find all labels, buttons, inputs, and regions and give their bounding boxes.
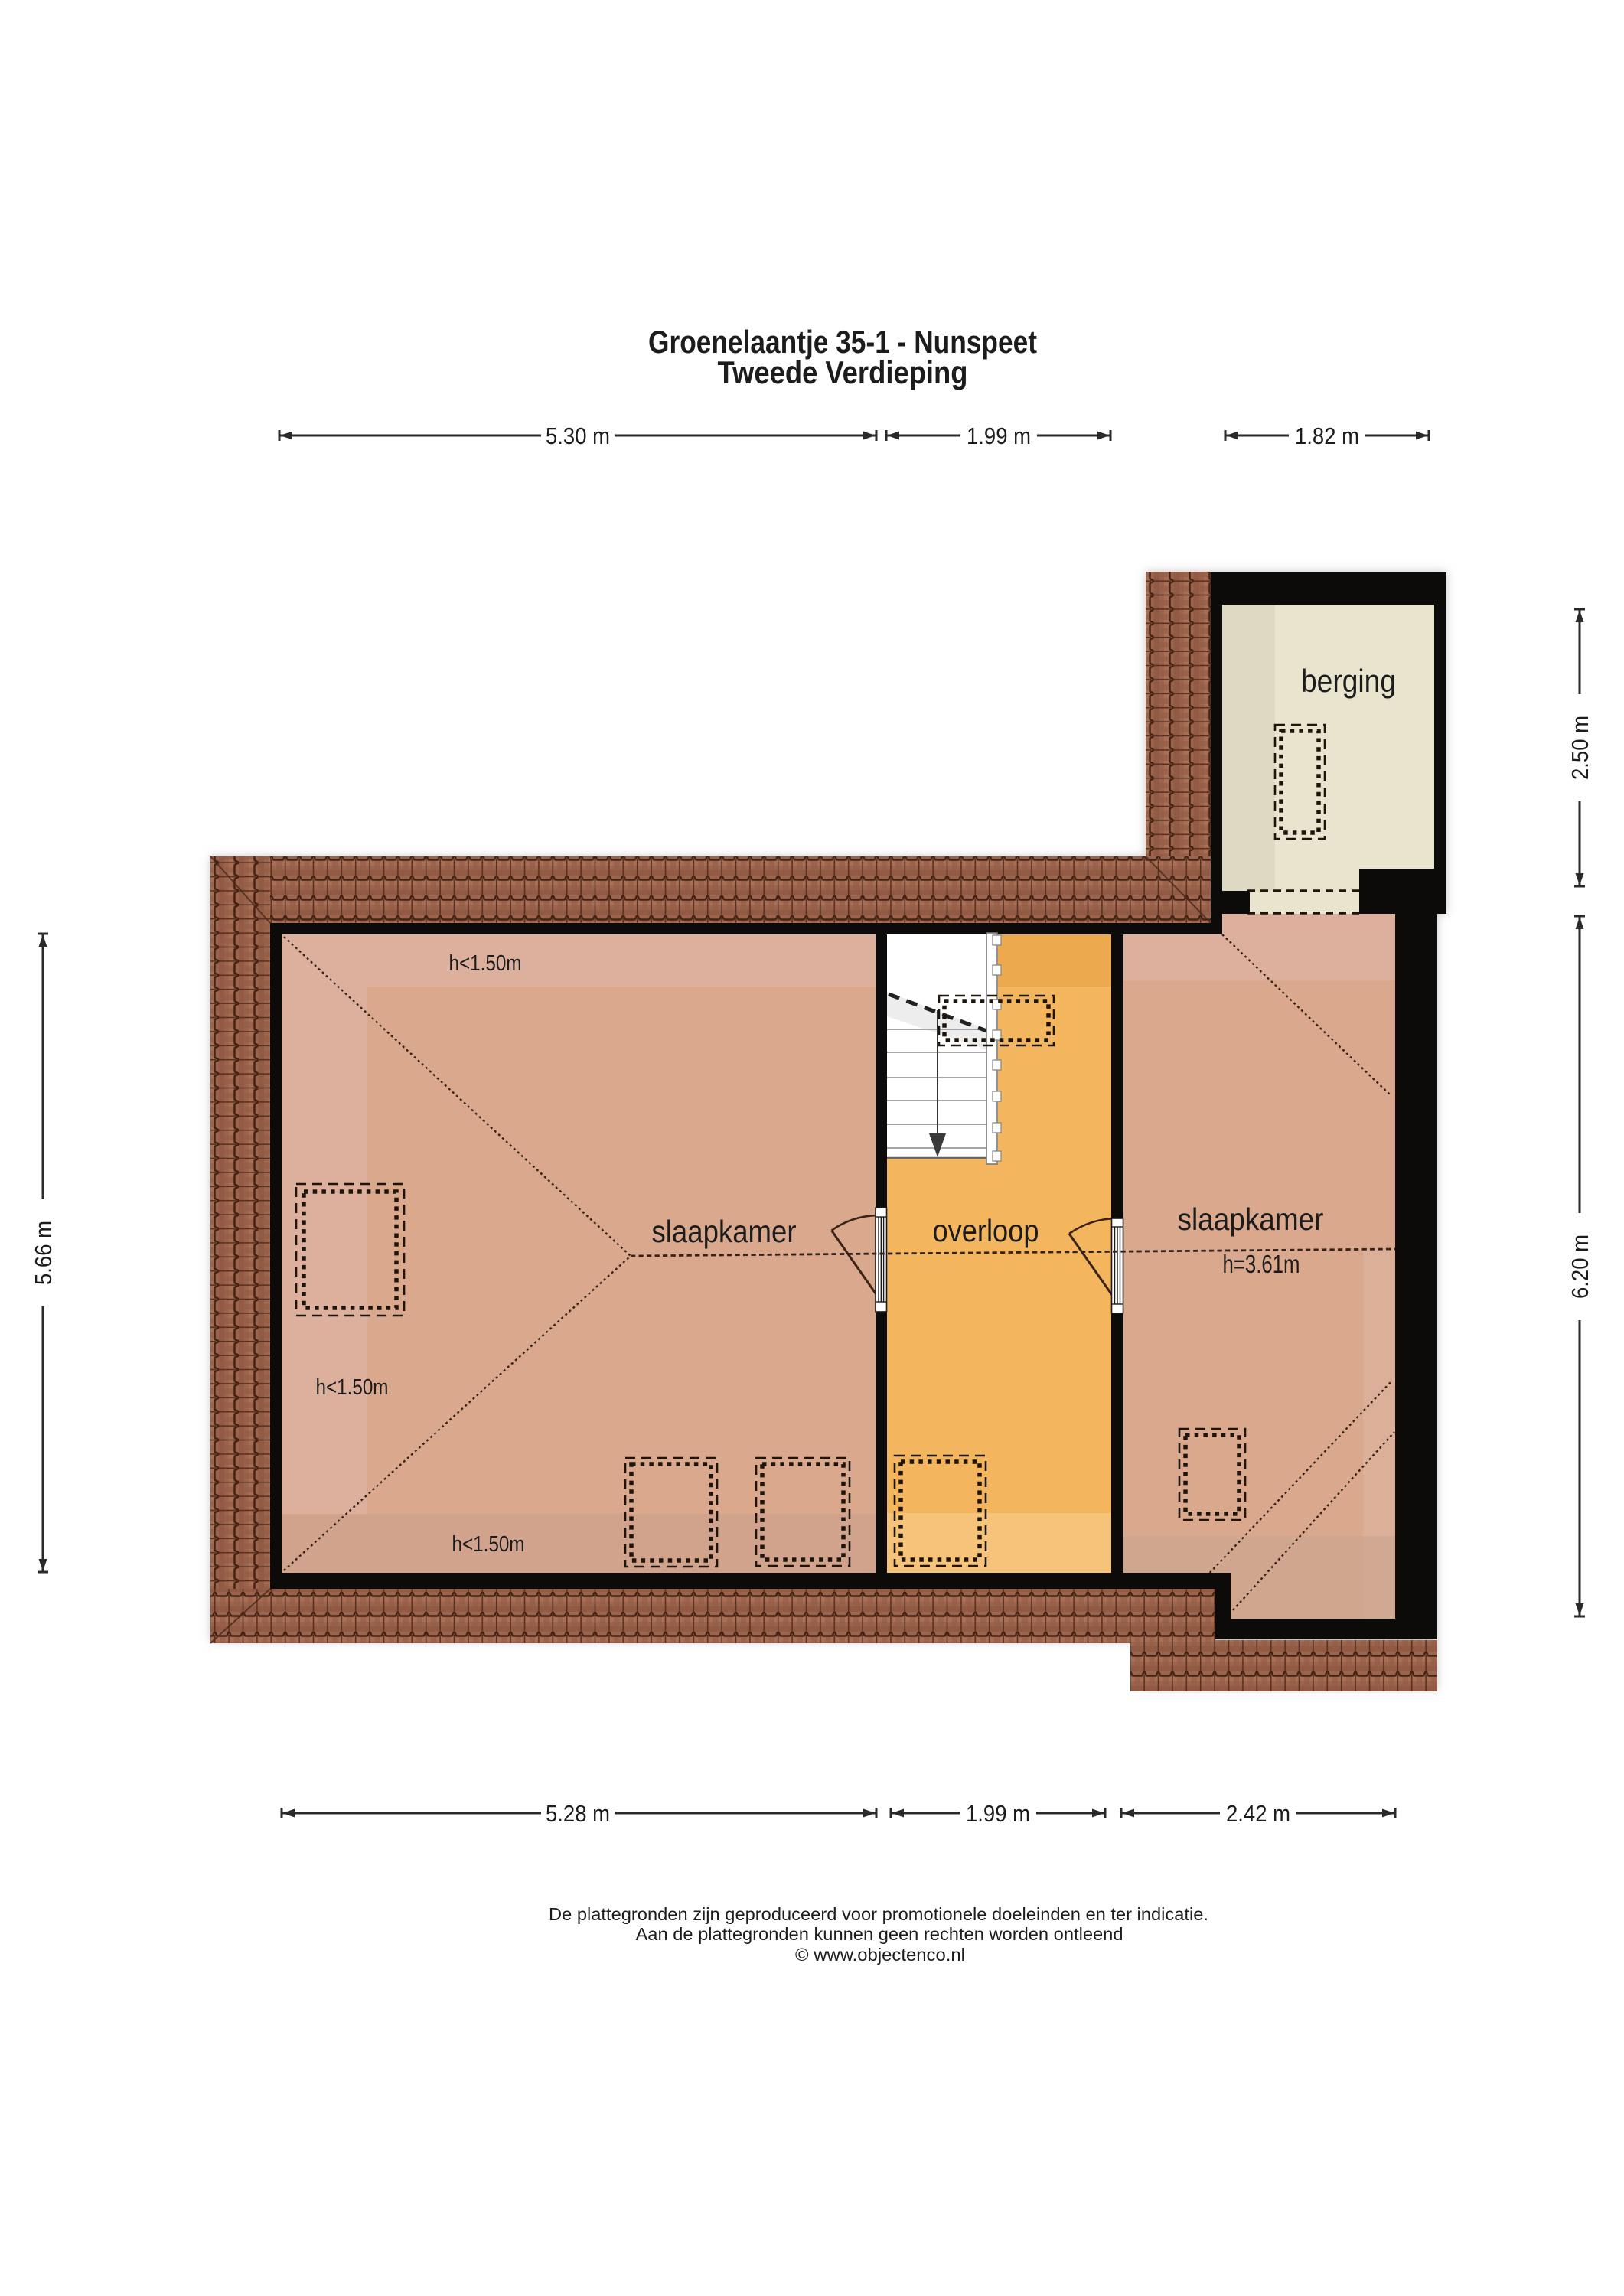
svg-text:slaapkamer: slaapkamer bbox=[652, 1214, 797, 1249]
svg-text:1.82 m: 1.82 m bbox=[1295, 422, 1359, 449]
svg-text:5.30 m: 5.30 m bbox=[546, 422, 610, 449]
svg-text:2.50 m: 2.50 m bbox=[1567, 716, 1593, 780]
svg-text:h<1.50m: h<1.50m bbox=[316, 1375, 389, 1400]
svg-text:2.42 m: 2.42 m bbox=[1226, 1800, 1290, 1827]
svg-text:De plattegronden zijn geproduc: De plattegronden zijn geproduceerd voor … bbox=[549, 1904, 1208, 1924]
svg-text:h=3.61m: h=3.61m bbox=[1223, 1250, 1300, 1278]
svg-text:5.66 m: 5.66 m bbox=[30, 1221, 57, 1285]
svg-text:overloop: overloop bbox=[933, 1213, 1039, 1248]
svg-text:slaapkamer: slaapkamer bbox=[1178, 1202, 1324, 1237]
svg-text:1.99 m: 1.99 m bbox=[967, 422, 1031, 449]
svg-text:Aan de plattegronden kunnen ge: Aan de plattegronden kunnen geen rechten… bbox=[636, 1924, 1123, 1944]
svg-text:5.28 m: 5.28 m bbox=[546, 1800, 610, 1827]
svg-text:Tweede Verdieping: Tweede Verdieping bbox=[718, 354, 968, 390]
svg-text:h<1.50m: h<1.50m bbox=[452, 1532, 525, 1557]
svg-text:1.99 m: 1.99 m bbox=[966, 1800, 1030, 1827]
svg-text:© www.objectenco.nl: © www.objectenco.nl bbox=[795, 1945, 965, 1965]
svg-text:berging: berging bbox=[1301, 663, 1396, 699]
svg-text:h<1.50m: h<1.50m bbox=[449, 951, 522, 976]
svg-text:6.20 m: 6.20 m bbox=[1567, 1234, 1593, 1299]
